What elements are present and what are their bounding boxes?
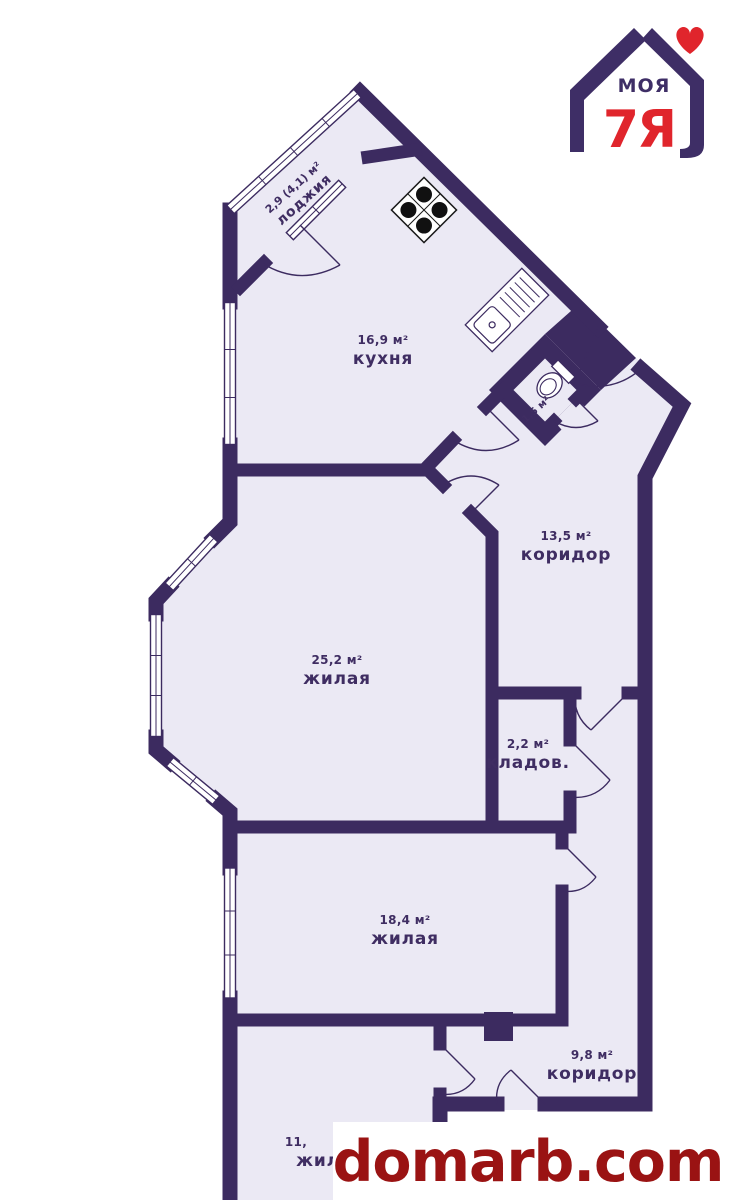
watermark: domarb.com — [333, 1122, 732, 1200]
kitchen-area: 16,9 м² — [358, 333, 409, 347]
hall-area: 13,5 м² — [541, 529, 592, 543]
room-label-living2: 18,4 м² жилая — [371, 913, 439, 949]
hall2-area: 9,8 м² — [571, 1048, 613, 1062]
room-label-kitchen: 16,9 м² кухня — [353, 333, 413, 369]
logo-text-main: 7Я — [603, 100, 675, 160]
living2-name: жилая — [371, 929, 439, 949]
wall-pillar — [484, 1012, 513, 1041]
floorplan-drawing: 2,9 (4,1) м² лоджия 16,9 м² кухня 1,5 м²… — [0, 0, 732, 1200]
room-label-living1: 25,2 м² жилая — [303, 653, 371, 689]
living3-area: 11, — [285, 1135, 307, 1149]
living1-area: 25,2 м² — [312, 653, 363, 667]
heart-icon — [676, 27, 703, 54]
storage-area: 2,2 м² — [507, 737, 549, 751]
floorplan-page: 2,9 (4,1) м² лоджия 16,9 м² кухня 1,5 м²… — [0, 0, 732, 1200]
hall2-name: коридор — [547, 1064, 637, 1084]
watermark-text: domarb.com — [333, 1129, 724, 1195]
logo-text-top: МОЯ — [618, 75, 671, 97]
brand-logo: МОЯ 7Я — [570, 27, 704, 160]
kitchen-name: кухня — [353, 349, 413, 369]
hall-name: коридор — [521, 545, 611, 565]
storage-name: кладов. — [486, 753, 570, 773]
living2-area: 18,4 м² — [380, 913, 431, 927]
living1-name: жилая — [303, 669, 371, 689]
